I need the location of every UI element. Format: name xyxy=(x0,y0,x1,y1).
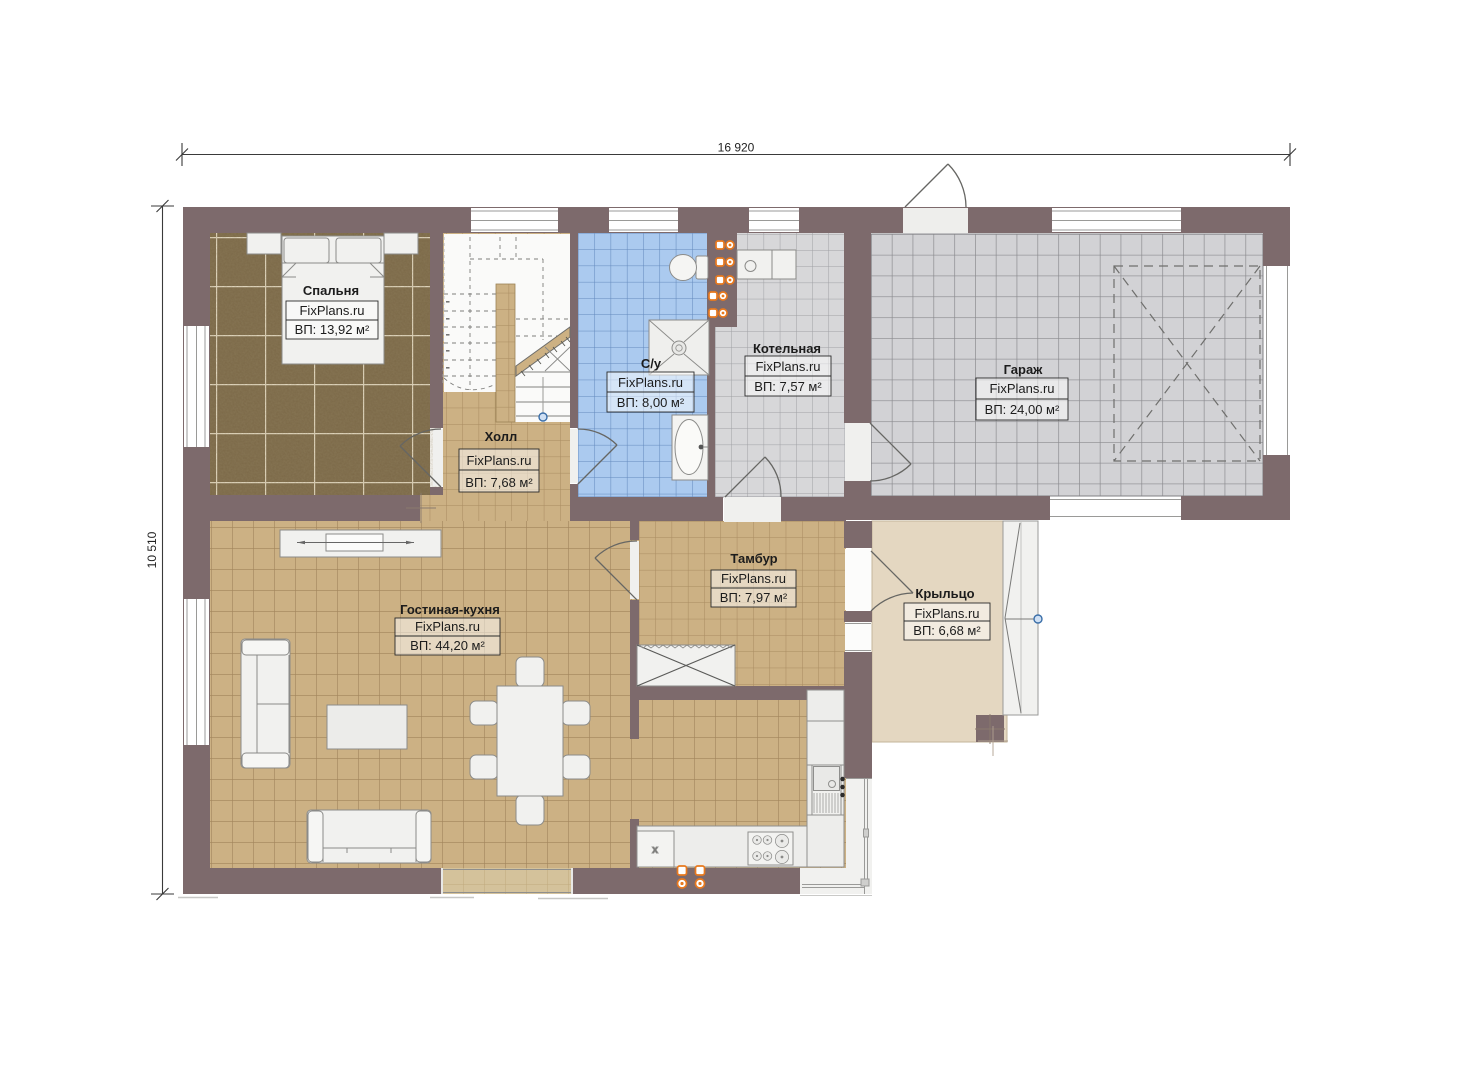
svg-text:Спальня: Спальня xyxy=(303,283,359,298)
svg-text:ВП: 7,97 м²: ВП: 7,97 м² xyxy=(720,590,788,605)
svg-text:16 920: 16 920 xyxy=(718,141,755,155)
svg-text:Гараж: Гараж xyxy=(1004,362,1044,377)
svg-text:Крыльцо: Крыльцо xyxy=(915,586,974,601)
svg-text:FixPlans.ru: FixPlans.ru xyxy=(755,359,820,374)
svg-text:FixPlans.ru: FixPlans.ru xyxy=(618,375,683,390)
svg-text:FixPlans.ru: FixPlans.ru xyxy=(299,303,364,318)
svg-text:x: x xyxy=(652,844,659,856)
svg-text:FixPlans.ru: FixPlans.ru xyxy=(989,381,1054,396)
svg-text:ВП: 13,92 м²: ВП: 13,92 м² xyxy=(295,322,370,337)
svg-text:FixPlans.ru: FixPlans.ru xyxy=(721,571,786,586)
svg-text:Холл: Холл xyxy=(485,429,518,444)
svg-text:Котельная: Котельная xyxy=(753,341,821,356)
svg-text:ВП: 7,68 м²: ВП: 7,68 м² xyxy=(465,475,533,490)
svg-text:ВП: 24,00 м²: ВП: 24,00 м² xyxy=(985,402,1060,417)
svg-text:ВП: 6,68 м²: ВП: 6,68 м² xyxy=(913,623,981,638)
svg-text:С/у: С/у xyxy=(641,356,662,371)
svg-text:10 510: 10 510 xyxy=(145,531,159,568)
svg-text:ВП: 8,00 м²: ВП: 8,00 м² xyxy=(617,395,685,410)
svg-text:Тамбур: Тамбур xyxy=(730,551,777,566)
svg-text:FixPlans.ru: FixPlans.ru xyxy=(466,453,531,468)
svg-text:ВП: 44,20 м²: ВП: 44,20 м² xyxy=(410,638,485,653)
svg-text:FixPlans.ru: FixPlans.ru xyxy=(415,619,480,634)
svg-text:Гостиная-кухня: Гостиная-кухня xyxy=(400,602,500,617)
svg-text:FixPlans.ru: FixPlans.ru xyxy=(914,606,979,621)
svg-text:ВП: 7,57 м²: ВП: 7,57 м² xyxy=(754,379,822,394)
